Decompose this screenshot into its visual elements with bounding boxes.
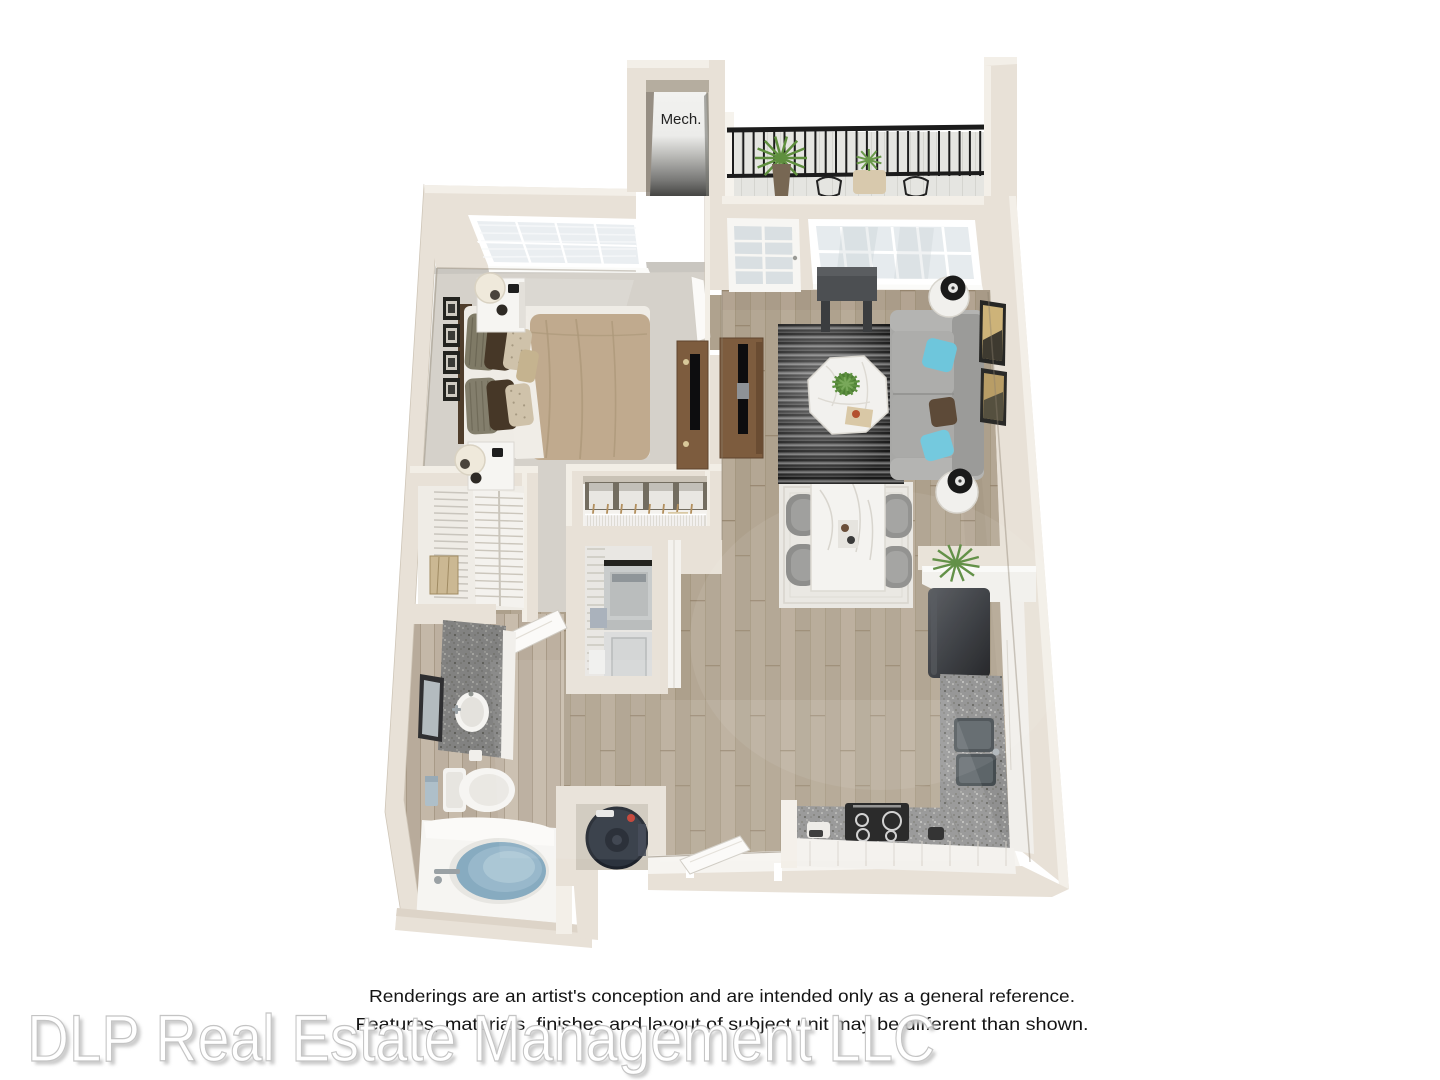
- svg-text:DLP Real Estate Management LLC: DLP Real Estate Management LLC: [27, 1001, 935, 1075]
- svg-text:Mech.: Mech.: [661, 111, 702, 128]
